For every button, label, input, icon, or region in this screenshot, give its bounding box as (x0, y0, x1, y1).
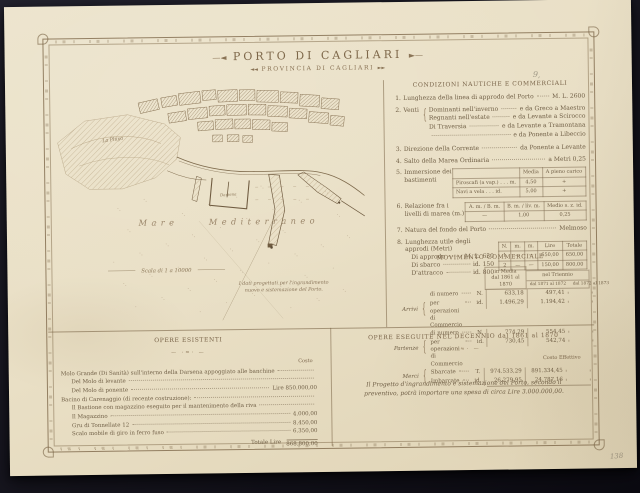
conditions-heading: CONDIZIONI NAUTICHE E COMMERCIALI (395, 80, 585, 90)
sheet-subtitle-text: PROVINCIA DI CAGLIARI (261, 64, 374, 72)
brace-glyph: { (423, 107, 427, 126)
item-value: Melmoso (559, 224, 587, 232)
map-scale-label: Scala di 1 a 10000 (141, 268, 192, 275)
handwritten-number-bottom: 138 (609, 452, 623, 461)
dotted-leader (492, 158, 545, 160)
dotted-leader (501, 108, 516, 109)
executed-works-section: OPERE ESEGUITE NEL DECENNIO dal 1861 al … (342, 332, 585, 400)
dotted-leader (111, 413, 290, 416)
opere-eseguite-heading: OPERE ESEGUITE NEL DECENNIO dal 1861 al … (342, 332, 584, 343)
port-map: La Playa (51, 76, 368, 324)
group-rows: di numero N. 633,18 497,41 per operazion… (430, 289, 593, 330)
title-flourish-right: ►— (409, 51, 423, 60)
work-cost: 8.450,00 (293, 420, 318, 427)
item-label: Salto della Marea Ordinaria (404, 156, 489, 165)
works-list: Molo Grande (Di Sanità) sull'interno del… (61, 368, 318, 439)
brace-glyph: { (420, 301, 428, 320)
handwritten-number-top: 9, (533, 70, 541, 80)
table-body: Piroscafi (a vap.) . . . m. 4,50 + Navi … (452, 177, 586, 198)
dotted-leader (131, 387, 269, 390)
row-label: di numero (430, 291, 459, 299)
row-unit: N. (474, 291, 486, 298)
wind-season: Regnanti nell'estate (429, 114, 490, 123)
dotted-leader (194, 395, 314, 398)
condition-item-4: 4. Salto della Marea Ordinaria a Metri 0… (396, 155, 586, 165)
dotted-leader (469, 125, 499, 126)
immersion-table: Media A pieno carico Piroscafi (a vap.) … (452, 167, 587, 198)
conditions-section: CONDIZIONI NAUTICHE E COMMERCIALI 1. Lun… (395, 80, 588, 282)
dotted-leader (537, 95, 549, 96)
dotted-leader (465, 302, 471, 303)
item-label: Direzione della Corrente (404, 145, 479, 154)
movimento-heading: MOVIMENTO COMMERCIALE (391, 252, 589, 262)
item-number: 5. (396, 169, 404, 177)
work-label: Il Magazzino (61, 414, 107, 422)
work-cost: 4.000,00 (293, 411, 318, 418)
item-number: 2. (395, 106, 403, 114)
movimento-group-arrivi: Arrivi { di numero N. 633,18 497,41 (392, 289, 590, 330)
heading-ornament: — ·≈· — (342, 344, 584, 354)
item-value: a Metri 0,25 (548, 155, 586, 163)
costo-header: Costo (61, 358, 313, 368)
wind-season: Dominanti nell'inverno (429, 105, 499, 114)
map-soundings (112, 185, 350, 314)
work-cost: Lire 850.000,00 (272, 385, 317, 393)
subtitle-flourish-left: ◄◄ (250, 67, 258, 73)
item-number: 4. (396, 157, 404, 165)
sheet-content: —◄ PORTO DI CAGLIARI ►— ◄◄ PROVINCIA DI … (42, 31, 597, 450)
column-divider-bottom (330, 328, 333, 446)
dotted-leader (493, 116, 510, 117)
wind-direction: e da Levante a Tramontana (502, 122, 586, 131)
table-row: — 1,00 0,25 (466, 210, 587, 221)
dotted-leader (461, 293, 470, 294)
dotted-leader (432, 134, 510, 136)
row-label: per operazioni di Commercio (430, 301, 462, 330)
item-number: 8. (397, 239, 405, 247)
sea-label: Mare Mediterraneo (138, 215, 320, 227)
sheet-title-text: PORTO DI CAGLIARI (233, 48, 403, 63)
item-number: 7. (397, 227, 405, 235)
map-bearing-lines (199, 214, 283, 320)
wind-row: e da Ponente a Libeccio (429, 131, 586, 141)
item-label: Immersione dei bastimenti (404, 169, 452, 185)
work-label: Scalo mobile di giro in ferro fuso (62, 430, 164, 438)
existing-works-section: OPERE ESISTENTI — ·≈· — Costo Molo Grand… (60, 335, 317, 452)
photo-of-document: —◄ PORTO DI CAGLIARI ►— ◄◄ PROVINCIA DI … (0, 0, 640, 493)
column-divider-top (383, 80, 387, 327)
dotted-leader (482, 147, 517, 148)
condition-item-6: 6. Relazione fra i livelli di marea (m.)… (397, 200, 587, 222)
group-name: Arrivi (392, 307, 418, 314)
triennium-column-header: nel Triennio dal 1871 al 1872 dal 1872 a… (526, 270, 589, 290)
dotted-leader (278, 369, 314, 370)
value-year2 (568, 301, 593, 303)
work-label: Del Molo di ponente (61, 388, 128, 396)
work-label: Gru di Tonnellate 12 (61, 422, 129, 430)
condition-item-7: 7. Natura del fondo del Porto Melmoso (397, 224, 587, 234)
costo-effettivo-header: Costo Effettivo (343, 355, 581, 365)
wind-rows: Dominanti nell'inverno e da Greco a Maes… (429, 104, 586, 141)
dotted-leader (489, 227, 556, 229)
map-note: I dati progettati per l'ingrandimento nu… (238, 280, 329, 294)
dotted-leader (167, 430, 290, 433)
works-row: Scalo mobile di giro in ferro fuso 6.350… (62, 428, 318, 438)
condition-item-2: 2. Venti { Dominanti nell'inverno e da G… (395, 104, 585, 142)
item-number: 6. (397, 203, 405, 211)
map-terrain-west: La Playa (57, 114, 181, 190)
dotted-leader (129, 378, 314, 381)
item-number: 1. (395, 95, 403, 103)
project-note-paragraph: Il Progetto d'ingrandimento e sistemazio… (343, 377, 585, 399)
dotted-leader (132, 422, 290, 425)
works-total: Totale Lire 868.800,00 (62, 439, 318, 451)
heading-ornament: — ·≈· — (60, 348, 316, 358)
item-label: Lunghezza della linea di approdo del Por… (403, 93, 534, 103)
item-value: M. L. 2600 (552, 92, 585, 100)
map-port-works: Darsena (192, 171, 366, 250)
title-flourish-left: —◄ (212, 53, 226, 62)
item-label: Venti (403, 106, 419, 114)
title-block: —◄ PORTO DI CAGLIARI ►— ◄◄ PROVINCIA DI … (43, 45, 593, 75)
item-label: Lunghezza utile degli approdi (Metri) (405, 237, 494, 254)
value-decade: 1.496,29 (486, 299, 527, 309)
row-unit: id. (474, 300, 486, 307)
wind-direction: e da Greco a Maestro (520, 104, 586, 113)
map-scale: Scala di 1 a 10000 (108, 267, 225, 275)
movimento-row: per operazioni di Commercio id. 1.496,29… (430, 298, 593, 330)
map-note-line2: nuovo e sistemazione del Porto. (245, 287, 324, 294)
tide-levels-table: A. m. / B. m. B. m. / liv. m. Medio s. z… (465, 200, 587, 222)
work-cost: 6.350,00 (293, 428, 318, 435)
table-row: Navi a vela . . . id. 5,00 + (452, 186, 586, 197)
value-year2 (568, 292, 593, 294)
work-label: Del Molo di levante (61, 379, 126, 387)
opere-esistenti-heading: OPERE ESISTENTI (60, 335, 316, 346)
table-body: — 1,00 0,25 (466, 210, 587, 221)
wind-direction: e da Levante a Scirocco (513, 113, 586, 122)
decade-column-header: in Media dal 1861 al 1870 (484, 266, 526, 290)
total-label: Totale Lire (251, 440, 281, 450)
wind-season: Di Traversia (429, 123, 467, 131)
movimento-table-header: in Media dal 1861 al 1870 nel Triennio d… (391, 265, 589, 291)
condition-item-5: 5. Immersione dei bastimenti Media A pie… (396, 167, 586, 199)
total-value: 868.800,00 (286, 439, 318, 449)
item-value: da Ponente a Levante (520, 143, 586, 152)
wind-direction: e da Ponente a Libeccio (513, 131, 585, 140)
item-label: Relazione fra i livelli di marea (m.) (405, 202, 466, 218)
item-label: Natura del fondo del Porto (405, 226, 486, 235)
map-darsena-label: Darsena (219, 191, 237, 197)
dotted-leader (259, 404, 314, 406)
condition-item-3: 3. Direzione della Corrente da Ponente a… (396, 143, 586, 153)
work-label: Bacino di Carenaggio (di recente costruz… (61, 395, 191, 404)
paper-sheet: —◄ PORTO DI CAGLIARI ►— ◄◄ PROVINCIA DI … (4, 0, 637, 476)
condition-item-1: 1. Lunghezza della linea di approdo del … (395, 92, 585, 102)
item-number: 3. (396, 146, 404, 154)
subtitle-flourish-right: ►► (378, 65, 386, 71)
value-year1: 1.194,42 (527, 298, 568, 308)
